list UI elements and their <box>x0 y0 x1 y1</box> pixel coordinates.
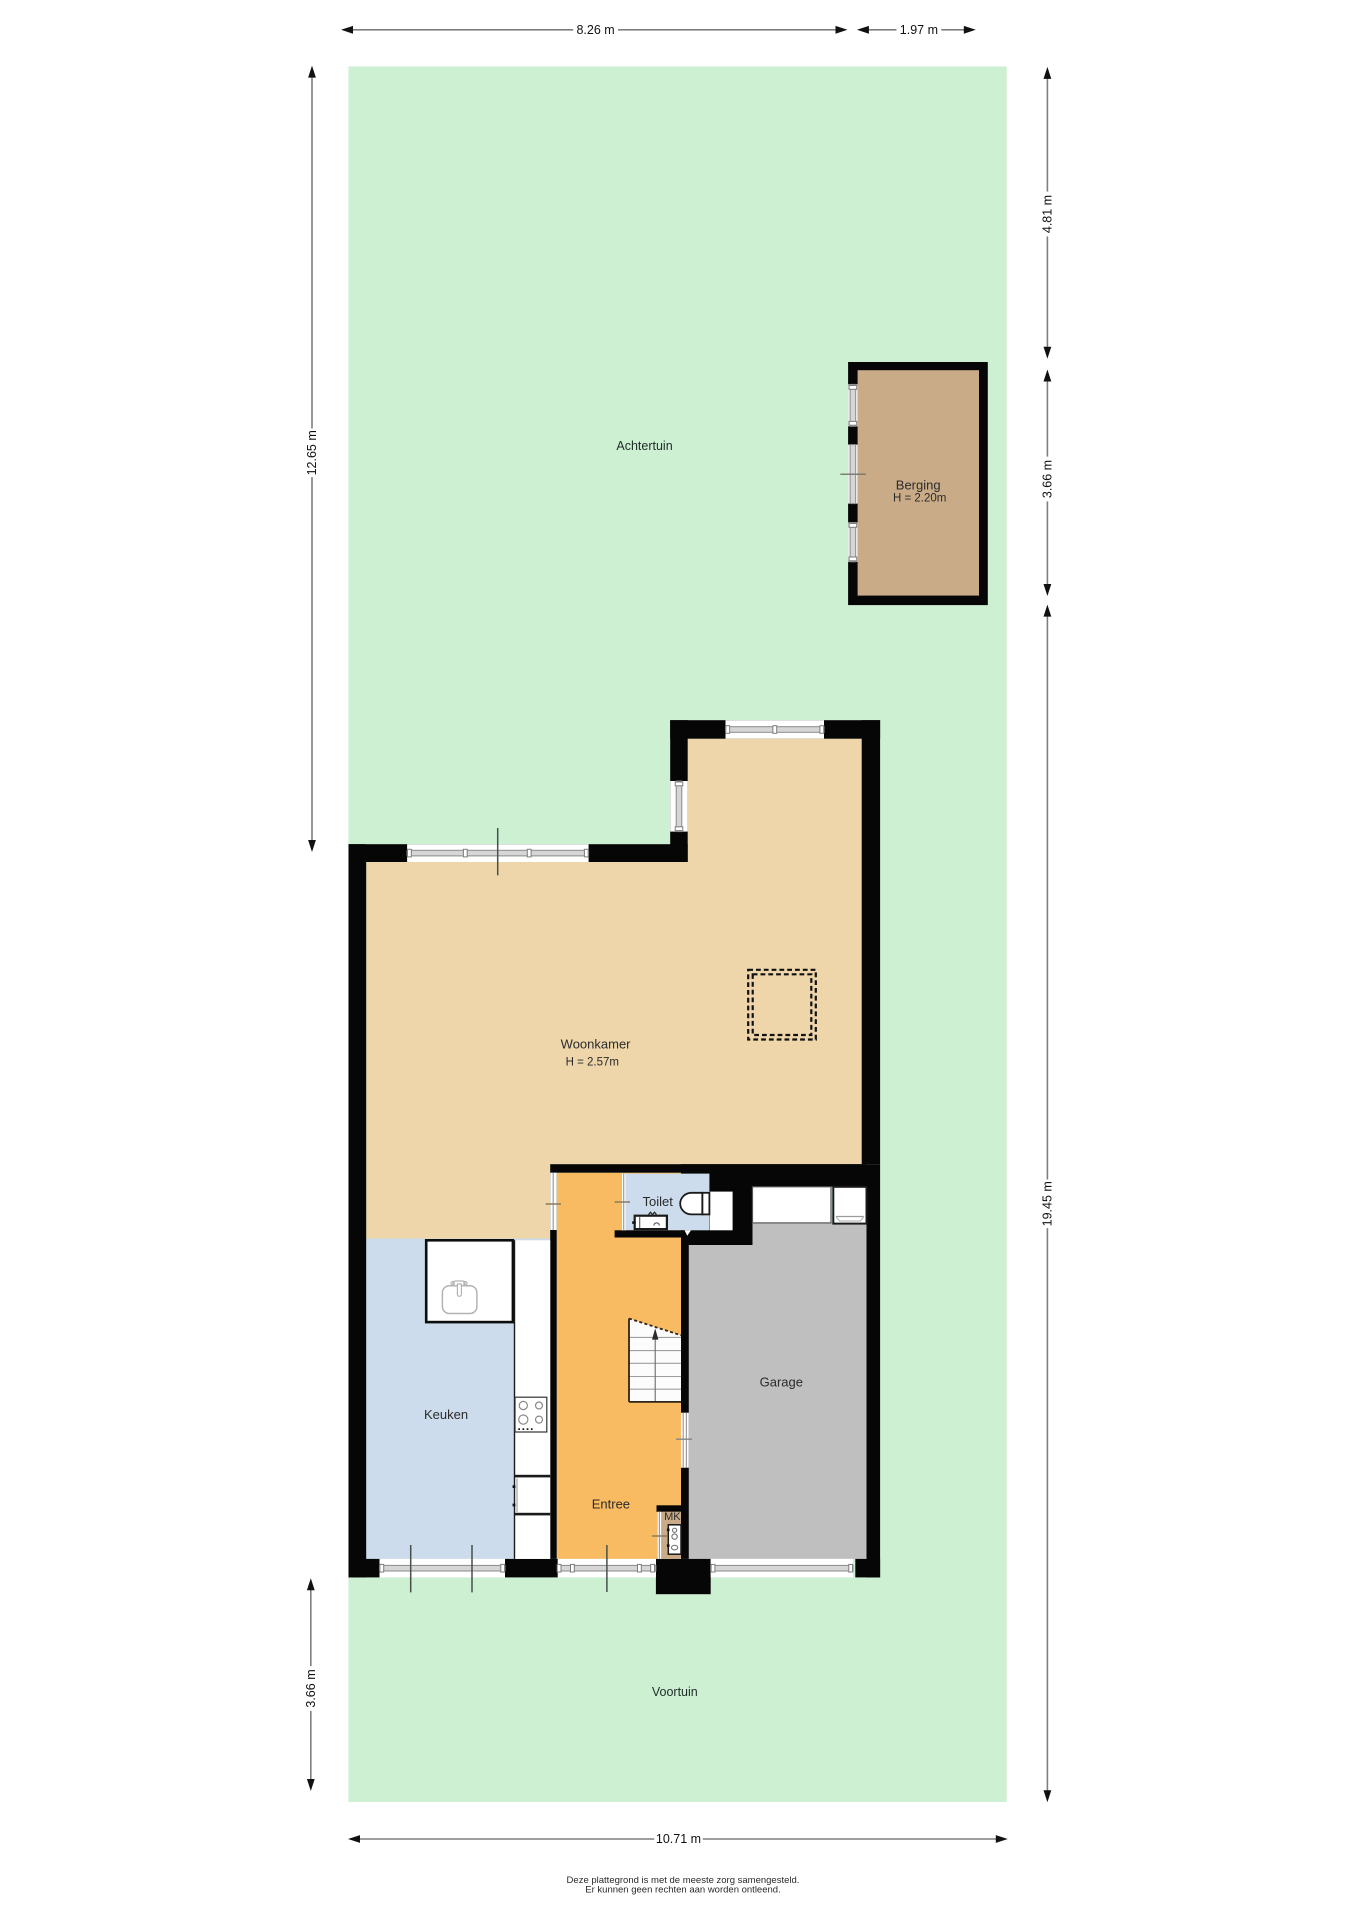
svg-text:3.66 m: 3.66 m <box>1040 460 1054 498</box>
svg-text:4.81 m: 4.81 m <box>1040 195 1054 233</box>
svg-text:Berging: Berging <box>896 477 941 492</box>
svg-text:Keuken: Keuken <box>424 1407 468 1422</box>
svg-text:H = 2.57m: H = 2.57m <box>566 1056 619 1068</box>
svg-text:Woonkamer: Woonkamer <box>561 1036 632 1051</box>
svg-text:8.26 m: 8.26 m <box>576 23 614 37</box>
svg-text:Entree: Entree <box>592 1496 630 1511</box>
svg-text:MK: MK <box>664 1511 681 1523</box>
svg-text:Garage: Garage <box>760 1375 803 1390</box>
svg-text:Voortuin: Voortuin <box>652 1685 698 1699</box>
svg-text:Toilet: Toilet <box>643 1194 674 1209</box>
svg-text:H = 2.20m: H = 2.20m <box>893 492 946 504</box>
svg-text:19.45 m: 19.45 m <box>1040 1181 1054 1226</box>
svg-text:Achtertuin: Achtertuin <box>616 439 672 453</box>
svg-text:Er kunnen geen rechten aan wor: Er kunnen geen rechten aan worden ontlee… <box>585 1884 780 1895</box>
svg-text:3.66 m: 3.66 m <box>304 1669 318 1707</box>
svg-text:12.65 m: 12.65 m <box>305 430 319 475</box>
svg-text:10.71 m: 10.71 m <box>656 1832 701 1846</box>
svg-text:1.97 m: 1.97 m <box>900 23 938 37</box>
